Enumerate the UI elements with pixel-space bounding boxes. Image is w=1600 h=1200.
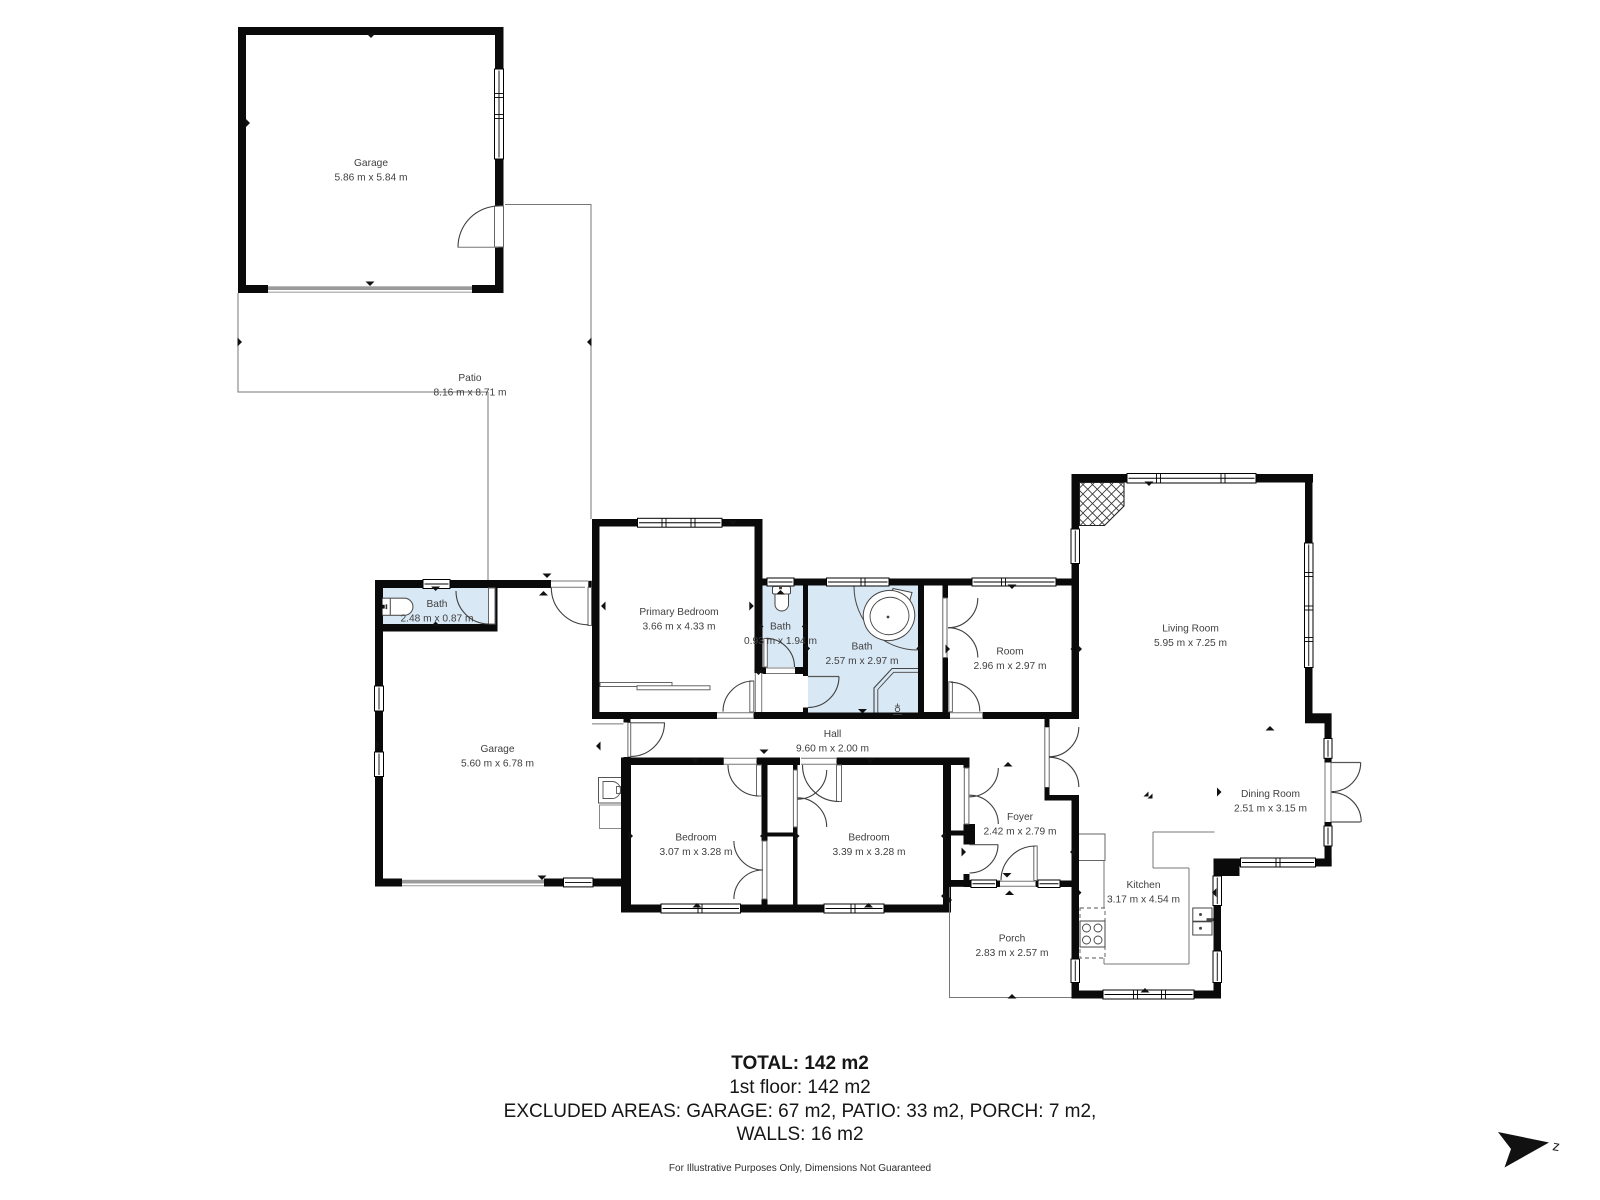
svg-text:Dining Room: Dining Room: [1241, 789, 1300, 800]
svg-text:9.60 m x 2.00 m: 9.60 m x 2.00 m: [796, 744, 869, 755]
svg-text:8.16 m x 8.71 m: 8.16 m x 8.71 m: [433, 388, 506, 399]
svg-text:Bath: Bath: [852, 642, 873, 653]
svg-text:5.60 m x 6.78 m: 5.60 m x 6.78 m: [461, 759, 534, 770]
svg-text:Room: Room: [996, 647, 1023, 658]
svg-text:5.95 m x 7.25 m: 5.95 m x 7.25 m: [1154, 638, 1227, 649]
svg-text:Kitchen: Kitchen: [1127, 880, 1161, 891]
svg-text:3.39 m x 3.28 m: 3.39 m x 3.28 m: [832, 847, 905, 858]
svg-text:5.86 m x 5.84 m: 5.86 m x 5.84 m: [334, 173, 407, 184]
svg-text:Bath: Bath: [427, 599, 448, 610]
svg-text:2.42 m x 2.79 m: 2.42 m x 2.79 m: [983, 827, 1056, 838]
svg-text:3.07 m x 3.28 m: 3.07 m x 3.28 m: [659, 847, 732, 858]
svg-text:Patio: Patio: [458, 373, 482, 384]
svg-text:EXCLUDED AREAS: GARAGE: 67 m2,: EXCLUDED AREAS: GARAGE: 67 m2, PATIO: 33…: [504, 1101, 1097, 1122]
svg-text:TOTAL: 142 m2: TOTAL: 142 m2: [731, 1053, 869, 1074]
svg-text:2.48 m x 0.87 m: 2.48 m x 0.87 m: [400, 614, 473, 625]
svg-text:2.83 m x 2.57 m: 2.83 m x 2.57 m: [975, 948, 1048, 959]
svg-text:0.93 m x 1.94 m: 0.93 m x 1.94 m: [744, 636, 817, 647]
svg-text:For Illustrative Purposes Only: For Illustrative Purposes Only, Dimensio…: [669, 1163, 931, 1174]
svg-text:Bedroom: Bedroom: [848, 833, 889, 844]
svg-text:Hall: Hall: [824, 729, 842, 740]
svg-text:3.17 m x 4.54 m: 3.17 m x 4.54 m: [1107, 895, 1180, 906]
svg-text:2.57 m x 2.97 m: 2.57 m x 2.97 m: [825, 656, 898, 667]
svg-text:Living Room: Living Room: [1162, 624, 1219, 635]
svg-text:Garage: Garage: [481, 744, 515, 755]
svg-text:Bedroom: Bedroom: [675, 833, 716, 844]
svg-text:Primary Bedroom: Primary Bedroom: [639, 607, 718, 618]
svg-text:Porch: Porch: [999, 934, 1026, 945]
svg-text:1st floor: 142 m2: 1st floor: 142 m2: [729, 1077, 871, 1098]
svg-text:2.96 m x 2.97 m: 2.96 m x 2.97 m: [973, 661, 1046, 672]
svg-text:WALLS: 16 m2: WALLS: 16 m2: [736, 1124, 863, 1145]
svg-text:2.51 m x 3.15 m: 2.51 m x 3.15 m: [1234, 804, 1307, 815]
svg-text:Bath: Bath: [770, 622, 791, 633]
svg-text:Garage: Garage: [354, 158, 388, 169]
svg-text:3.66 m x 4.33 m: 3.66 m x 4.33 m: [642, 622, 715, 633]
svg-text:Foyer: Foyer: [1007, 812, 1034, 823]
